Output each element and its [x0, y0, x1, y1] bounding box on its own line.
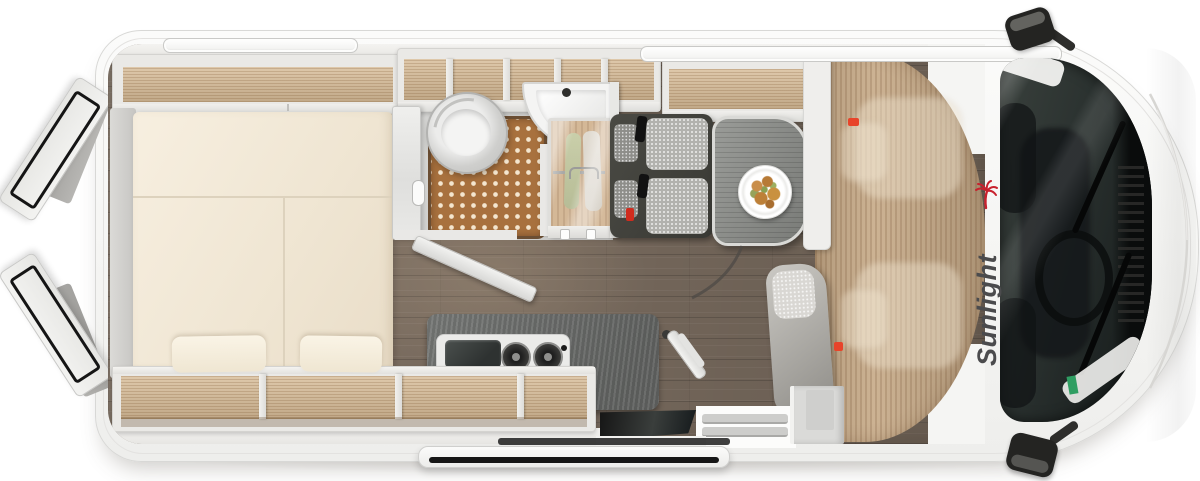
brand-logo-text: Sunlight — [974, 215, 1000, 405]
mirror-head — [1003, 5, 1058, 53]
mirror-face — [1010, 453, 1050, 474]
campervan-floorplan-render: Sunlight — [0, 0, 1200, 481]
table-leg — [692, 246, 742, 298]
mirror-face — [1009, 10, 1047, 33]
side-mirror-bottom — [1002, 418, 1086, 480]
palm-tree-icon — [973, 180, 999, 210]
hood-crease-lines — [0, 0, 1200, 481]
side-mirror-top — [1005, 5, 1085, 67]
